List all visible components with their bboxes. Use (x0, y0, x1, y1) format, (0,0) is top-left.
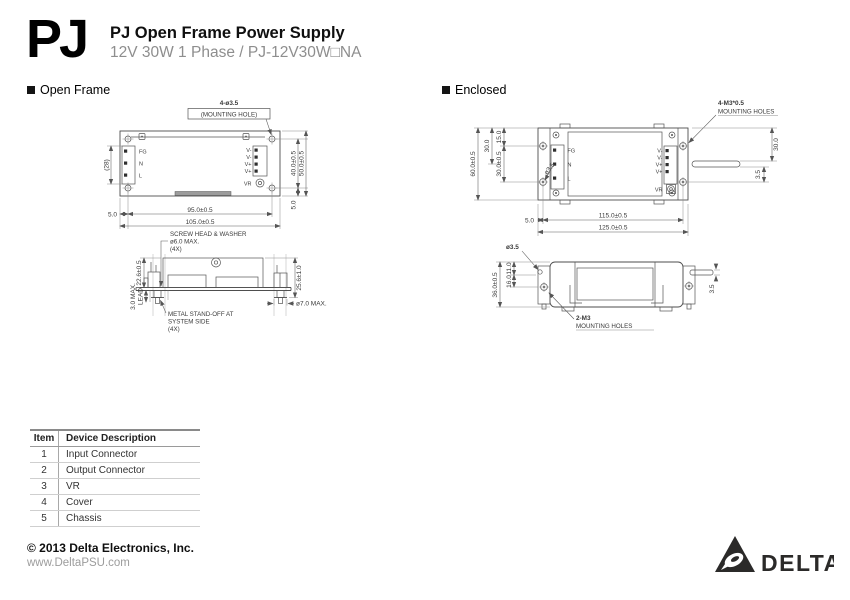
hole-note: MOUNTING HOLES (576, 323, 632, 330)
pcb-side (136, 288, 291, 291)
cell-item: 5 (30, 511, 59, 526)
pin-label-vplus: V+ (245, 169, 252, 175)
dim-30-right: 30.0 (773, 138, 780, 151)
dim-tab: 3.5 (709, 284, 716, 293)
table-row: 1 Input Connector (30, 447, 200, 463)
side-mounting-tab (690, 270, 713, 275)
hole-note: (MOUNTING HOLE) (201, 112, 257, 119)
dim-30-left: 30.0 (484, 139, 491, 152)
pin-label-vminus: V- (246, 155, 251, 161)
datasheet-page: PJ PJ Open Frame Power Supply 12V 30W 1 … (0, 0, 850, 600)
mounting-hole-callout: 2-M3 MOUNTING HOLES (549, 293, 654, 330)
hole-count-note: 2-M3 (576, 315, 591, 322)
cell-item: 1 (30, 447, 59, 462)
standoff-note-3: (4X) (168, 326, 180, 333)
output-connector: V- V- V+ V+ VR (244, 146, 267, 188)
dim-125: 125.0±0.5 (599, 225, 628, 232)
case-outline (538, 262, 713, 311)
delta-wordmark: DELTA (761, 550, 834, 576)
dim-5: 5.0 (525, 218, 534, 225)
page-subtitle: 12V 30W 1 Phase / PJ-12V30W□NA (110, 44, 361, 62)
dim-30-tol: 30.0±0.5 (496, 151, 503, 177)
screw-note-1: SCREW HEAD & WASHER (170, 231, 247, 238)
dim-105: 105.0±0.5 (186, 219, 215, 226)
pin-label-vminus: V- (657, 149, 662, 155)
delta-triangle-icon (715, 536, 755, 572)
cell-description: Output Connector (59, 463, 145, 478)
mounting-holes (123, 134, 278, 194)
col-header-description: Device Description (59, 431, 156, 446)
projection-lines (153, 254, 286, 316)
table-row: 2 Output Connector (30, 463, 200, 479)
col-header-item: Item (30, 431, 59, 446)
pin-label-n: N (139, 162, 143, 168)
hole-dia-label: ø3.5 (506, 244, 519, 251)
standoff-note-2: SYSTEM SIDE (168, 319, 210, 326)
cell-item: 4 (30, 495, 59, 510)
dim-lead-max: 3.0 MAX. (130, 283, 137, 310)
vent-perforation (577, 268, 653, 300)
pin-label-vminus: V- (657, 156, 662, 162)
table-header-row: Item Device Description (30, 429, 200, 447)
dim-115: 115.0±0.5 (599, 213, 628, 220)
cell-item: 3 (30, 479, 59, 494)
dim-25: 25.6±1.0 (296, 265, 303, 291)
flange-mounting-holes (538, 270, 694, 292)
open-frame-top-view-drawing: FG N L V- V- V+ V+ VR 4-ø3.5 (MOUNTING H… (95, 96, 335, 246)
dim-standoff-dia: ø7.0 MAX. (296, 301, 327, 308)
screw-note-3: (4X) (170, 246, 182, 253)
dim-5-left: 5.0 (108, 212, 117, 219)
dim-50: 50.0±0.5 (299, 150, 306, 176)
cell-item: 2 (30, 463, 59, 478)
delta-logo: DELTA (714, 534, 834, 580)
pin-label-n: N (568, 163, 572, 169)
standoffs (150, 291, 287, 304)
dim-5-right: 5.0 (291, 200, 298, 209)
hole-count-note: 4-M3*0.5 (718, 100, 744, 107)
edge-component (175, 192, 231, 196)
square-bullet-icon (27, 86, 35, 94)
dim-35-right: 3.5 (755, 170, 762, 179)
dim-16: 16.0 (506, 275, 513, 288)
vent-perforation (568, 132, 662, 196)
section-open-frame-label: Open Frame (40, 83, 110, 97)
cell-description: Cover (59, 495, 93, 510)
enclosed-top-view-drawing: FG N L V- V- V+ V+ VR 4-M3*0.5 MOUNTING … (450, 92, 800, 247)
side-mounting-tab (692, 161, 740, 167)
device-table: Item Device Description 1 Input Connecto… (30, 429, 200, 527)
pin-label-l: L (139, 174, 142, 180)
mounting-hole-callout: 4-M3*0.5 MOUNTING HOLES (689, 100, 778, 143)
mounting-hole-callout: 4-ø3.5 (MOUNTING HOLE) (188, 100, 271, 135)
cell-description: Chassis (59, 511, 102, 526)
input-connector: FG N L (122, 146, 147, 184)
copyright-text: © 2013 Delta Electronics, Inc. (27, 541, 194, 555)
website-link[interactable]: www.DeltaPSU.com (27, 557, 130, 569)
pin-label-vplus: V+ (656, 170, 663, 176)
lead-label: LEAD (138, 288, 145, 305)
pin-label-vplus: V+ (245, 162, 252, 168)
screw-callout: SCREW HEAD & WASHER ø6.0 MAX. (4X) (161, 231, 247, 286)
page-title: PJ Open Frame Power Supply (110, 24, 345, 43)
standoff-note-1: METAL STAND-OFF AT (168, 311, 234, 318)
cell-description: Input Connector (59, 447, 137, 462)
dim-15: 15.0 (496, 130, 503, 143)
pin-label-vr: VR (244, 182, 252, 188)
section-open-frame: Open Frame (27, 83, 110, 97)
cell-description: VR (59, 479, 80, 494)
series-logo: PJ (26, 8, 86, 70)
pin-label-vminus: V- (246, 148, 251, 154)
square-bullet-icon (442, 86, 450, 94)
pin-label-fg: FG (139, 150, 147, 156)
pin-label-vr: VR (655, 188, 663, 194)
table-row: 5 Chassis (30, 511, 200, 527)
dim-36: 36.0±0.5 (492, 272, 499, 298)
dim-95: 95.0±0.5 (187, 207, 213, 214)
dim-11: 11.0 (506, 262, 513, 275)
hole-note: MOUNTING HOLES (718, 109, 774, 116)
screw-note-2: ø6.0 MAX. (170, 239, 200, 246)
dimensions: 60.0±0.5 30.0 15.0 30.0±0.5 ø3.5 30.0 3.… (470, 128, 780, 236)
table-row: 4 Cover (30, 495, 200, 511)
pin-label-fg: FG (568, 149, 576, 155)
dim-40: 40.0±0.5 (291, 150, 298, 176)
enclosed-side-view-drawing: ø3.5 2-M3 MOUNTING HOLES 36.0±0.5 11.0 1… (478, 235, 808, 355)
table-row: 3 VR (30, 479, 200, 495)
dim-28: (28) (104, 159, 111, 171)
output-connector: V- V- V+ V+ VR (655, 146, 677, 194)
dim-22: 22.6±0.5 (136, 260, 143, 286)
hole-count-note: 4-ø3.5 (220, 100, 239, 107)
pin-label-vplus: V+ (656, 163, 663, 169)
pin-label-l: L (568, 177, 571, 183)
open-frame-side-view-drawing: SCREW HEAD & WASHER ø6.0 MAX. (4X) METAL… (58, 228, 343, 348)
dim-60: 60.0±0.5 (470, 151, 477, 177)
components-side (144, 258, 287, 288)
standoff-callout: METAL STAND-OFF AT SYSTEM SIDE (4X) (161, 301, 234, 334)
